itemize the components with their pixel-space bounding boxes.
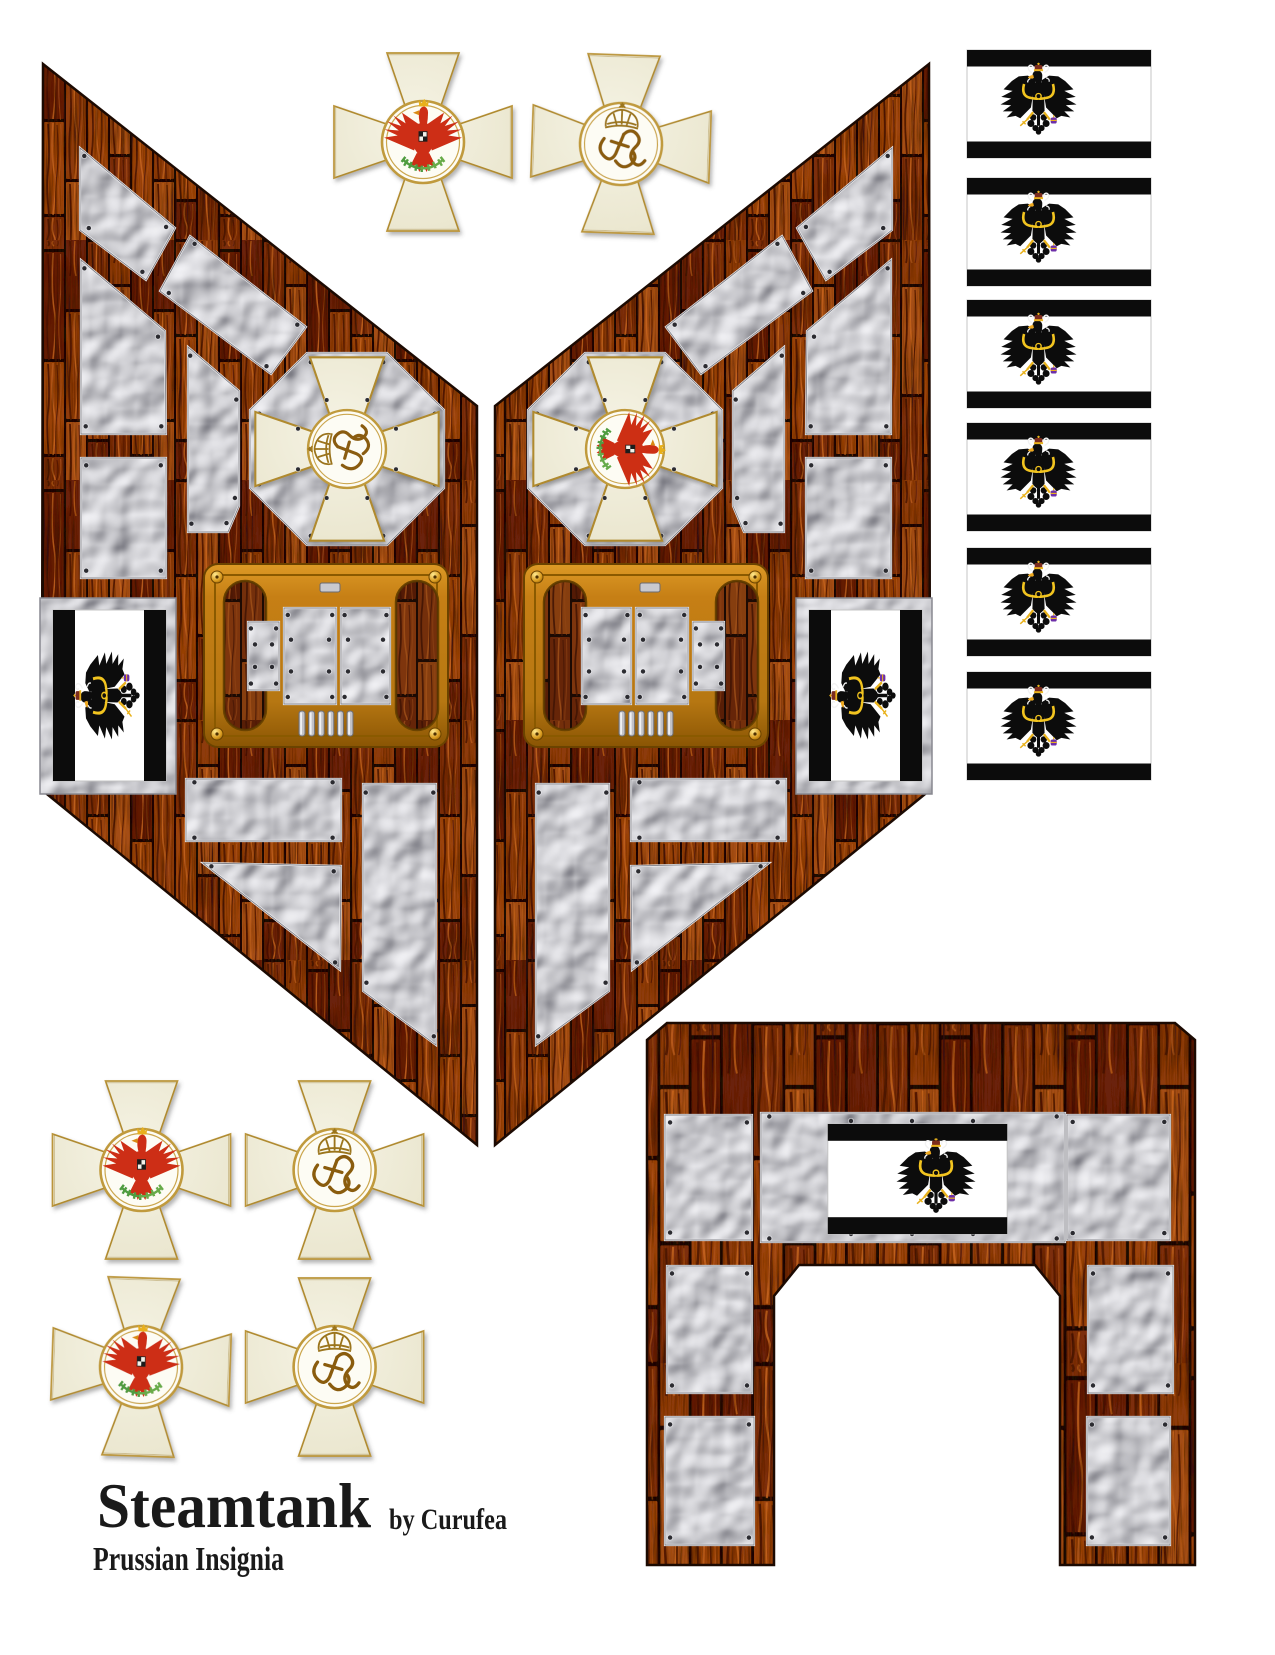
svg-text:Steamtank: Steamtank <box>97 1470 371 1541</box>
svg-text:Prussian Insignia: Prussian Insignia <box>93 1541 284 1578</box>
svg-text:by Curufea: by Curufea <box>389 1503 507 1536</box>
